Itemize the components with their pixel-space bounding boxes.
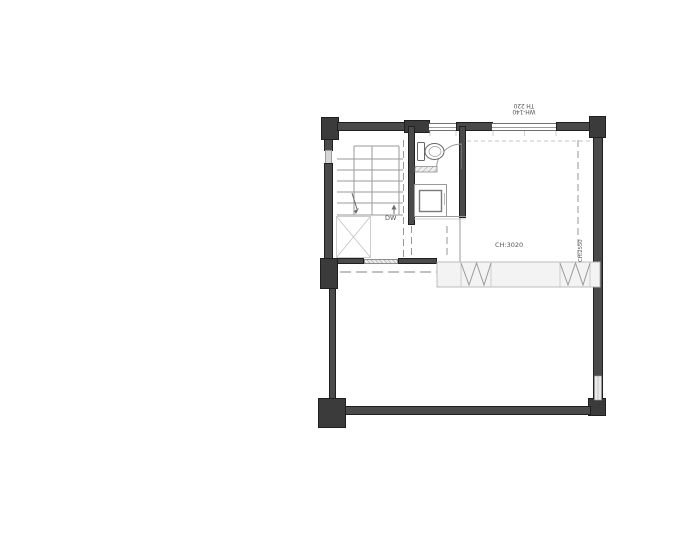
right-wall xyxy=(593,137,603,401)
dw-leader-arrow-icon xyxy=(392,205,397,215)
floor-edge-band xyxy=(437,262,600,287)
column-top-right xyxy=(589,116,606,138)
stair-void-x-marker xyxy=(337,217,371,258)
bathroom-threshold-hatch xyxy=(415,167,437,173)
mid-wall-left xyxy=(337,258,364,264)
truss-marker-left xyxy=(461,263,491,285)
main-window xyxy=(492,123,557,131)
column-mid-left xyxy=(320,258,338,289)
right-wall-tag: CH:2550 xyxy=(579,220,585,262)
left-wall-upper-b xyxy=(324,163,333,259)
bathroom-left-wall xyxy=(408,126,415,225)
window-height-tag: WH-140 TH 220 xyxy=(492,101,556,114)
left-wall-lower xyxy=(329,288,336,399)
bottom-wall xyxy=(344,406,591,415)
window-tag-line2: TH 220 xyxy=(492,101,556,107)
column-bottom-left xyxy=(318,398,346,428)
bathroom-window xyxy=(429,123,457,131)
toilet-fixture xyxy=(418,143,445,161)
top-wall-stair xyxy=(337,122,406,131)
truss-marker-right xyxy=(560,263,590,285)
mid-wall-right xyxy=(398,258,437,264)
window-glass-line xyxy=(492,127,557,128)
staircase xyxy=(337,146,403,215)
counter-appliance xyxy=(420,191,442,212)
stair-direction-arrow xyxy=(352,193,359,214)
floor-plan-canvas: WH-140 TH 220 CH:2550 DW CH:3020 xyxy=(0,0,700,560)
dishwasher-label: DW xyxy=(385,215,396,222)
mid-wall-opening xyxy=(364,259,398,264)
ceiling-height-label: CH:3020 xyxy=(495,242,523,249)
bathroom-right-wall xyxy=(459,126,466,218)
top-wall-right xyxy=(556,122,592,131)
window-glass-line xyxy=(429,127,457,128)
window-jamb-ticks xyxy=(430,131,556,136)
bathroom-door xyxy=(437,144,462,169)
stair-window xyxy=(325,150,332,164)
